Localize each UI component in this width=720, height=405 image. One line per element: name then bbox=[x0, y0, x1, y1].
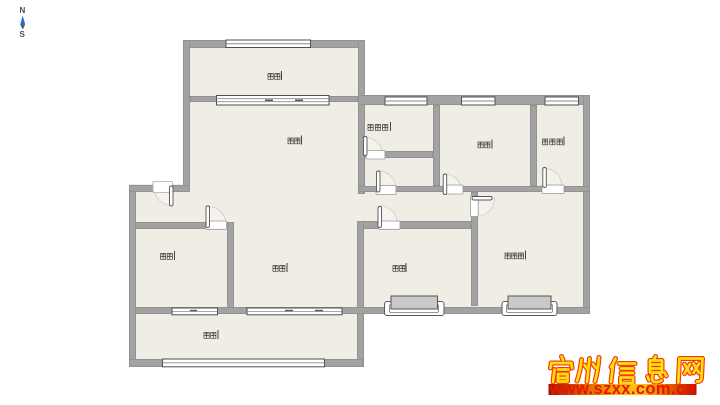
svg-text:www.szxx.com.cn: www.szxx.com.cn bbox=[549, 380, 696, 398]
svg-text:N: N bbox=[20, 6, 26, 15]
svg-text:S: S bbox=[20, 30, 26, 39]
